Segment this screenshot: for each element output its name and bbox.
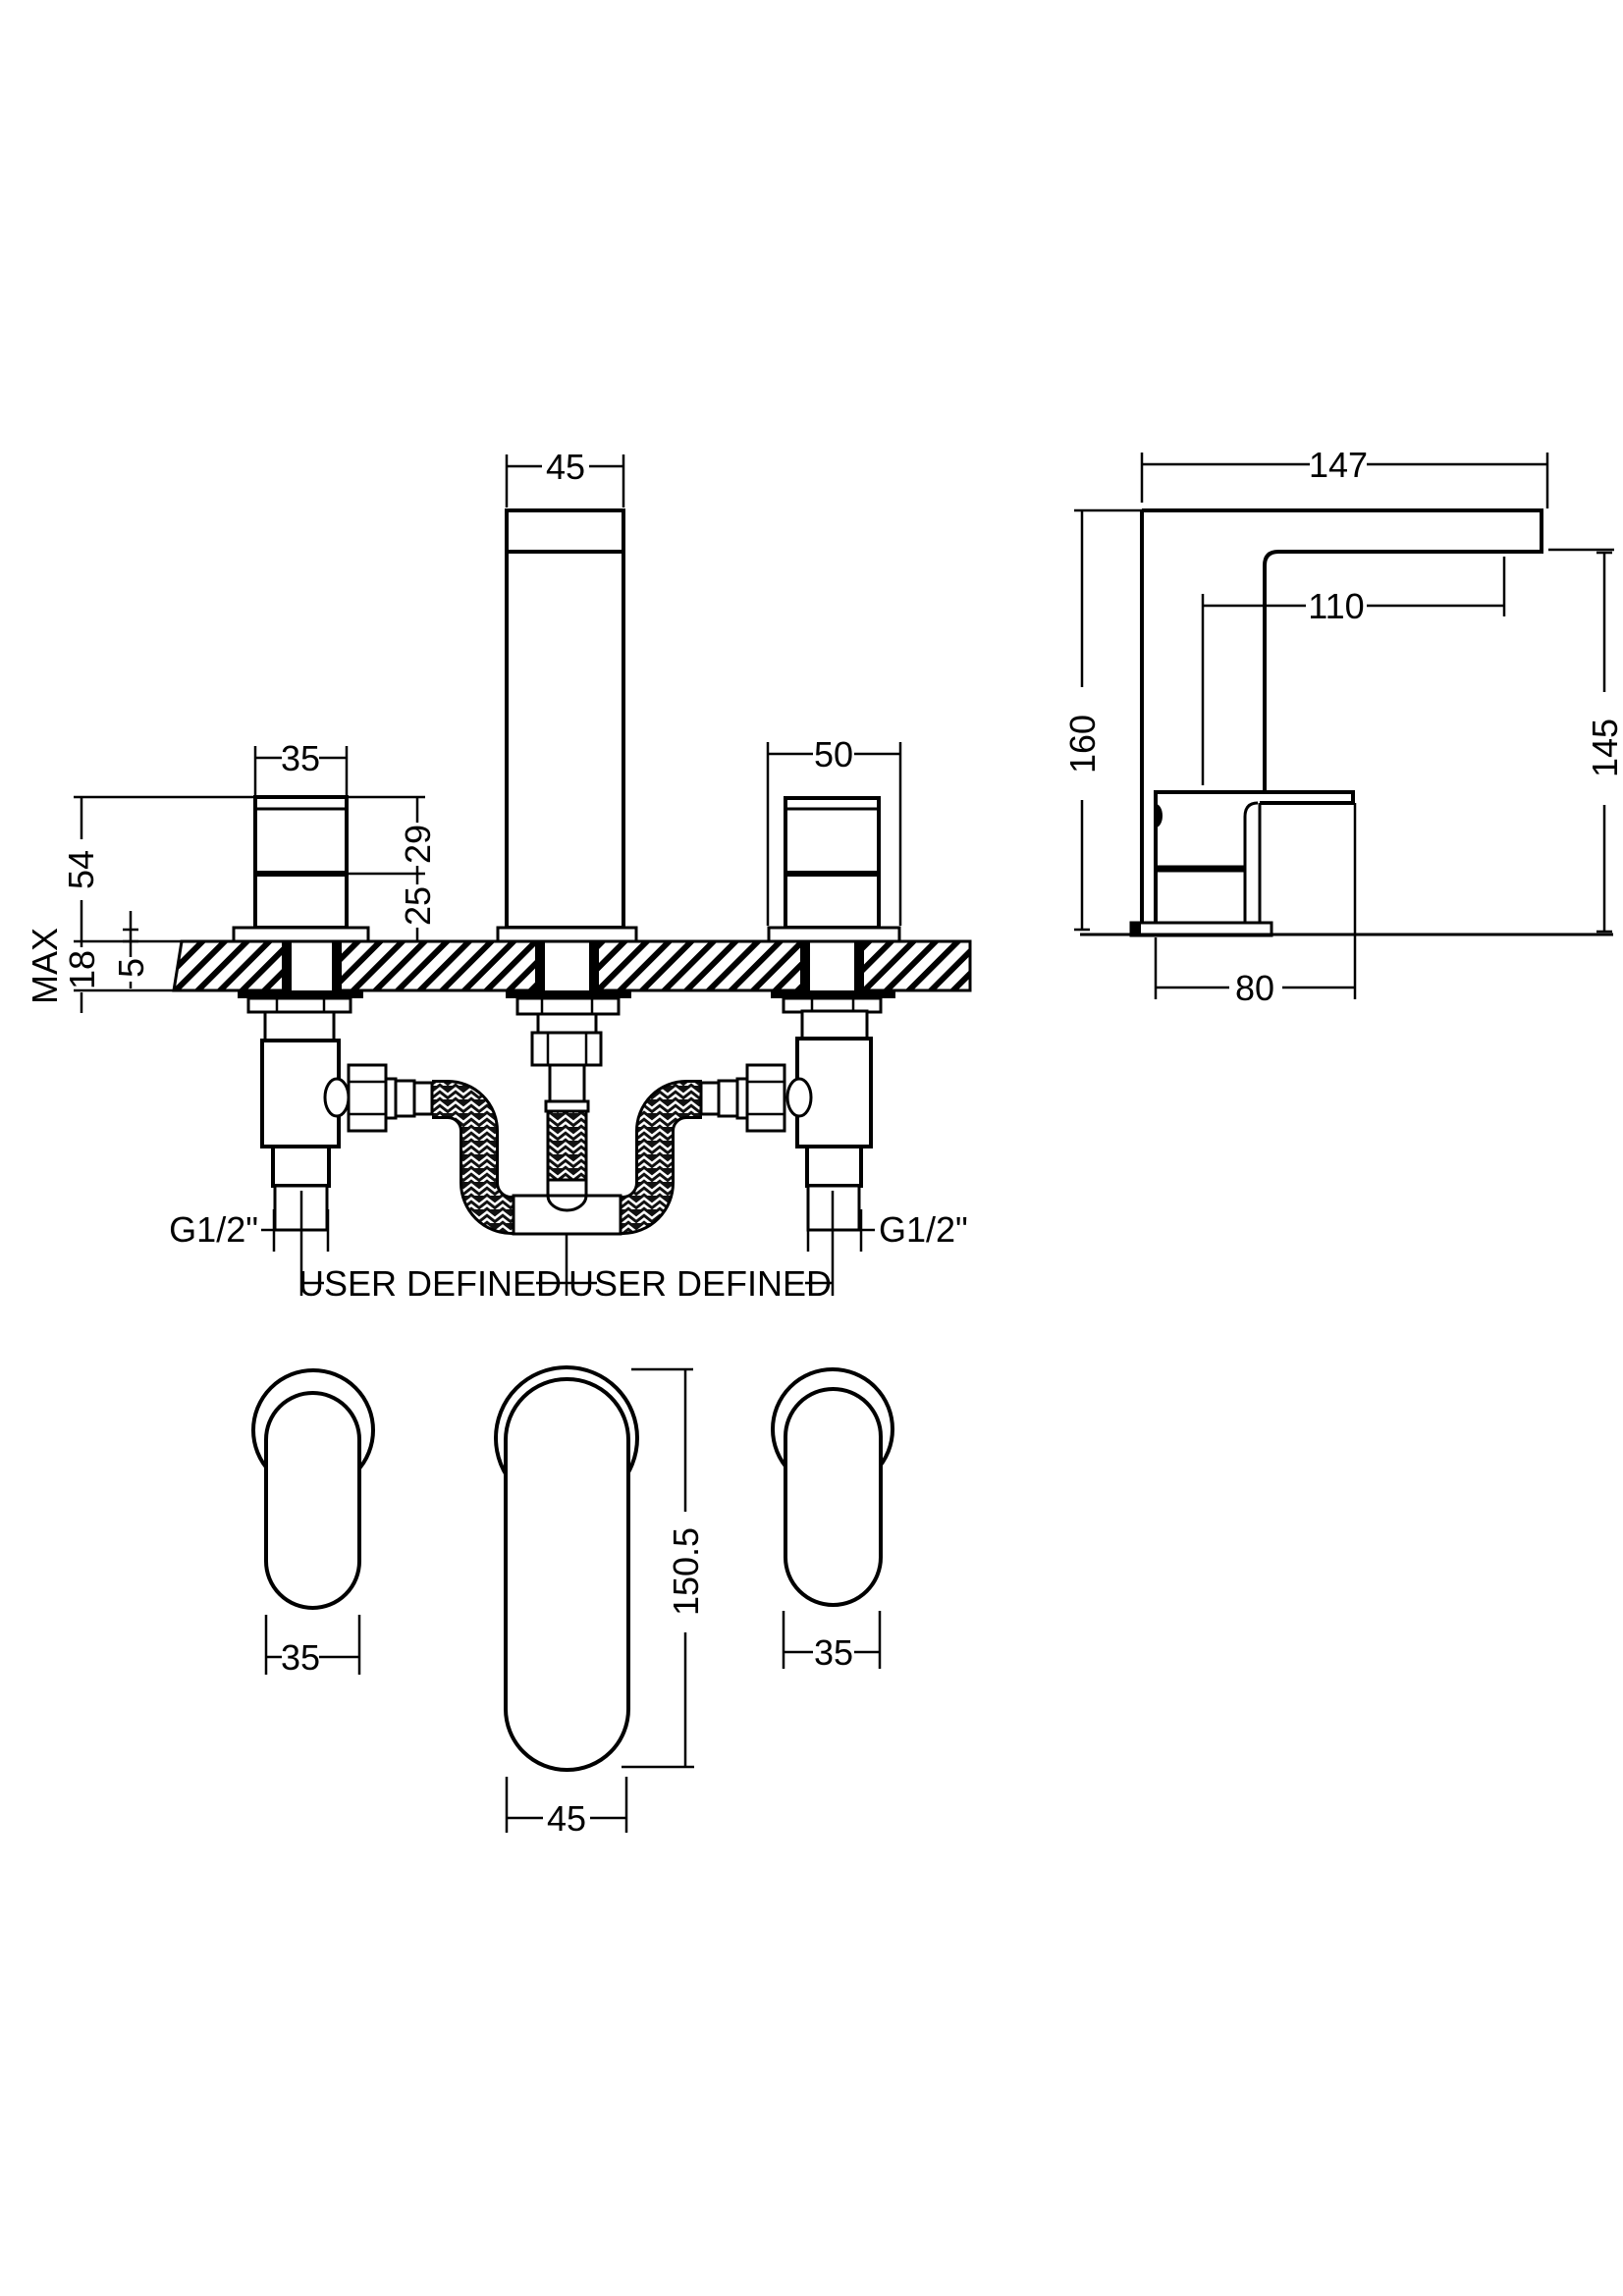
dim-label: 45 — [547, 1798, 586, 1839]
dim-label: 50 — [814, 734, 853, 774]
front-view: 45 35 50 54 29 25 18 MAX — [25, 447, 970, 1304]
dim-label: 35 — [281, 738, 320, 778]
spout-plan: 150.5 45 — [496, 1367, 706, 1839]
thread-text: G1/2" — [879, 1209, 968, 1250]
shank-wall — [535, 940, 545, 991]
dim-handle-upper: 29 — [347, 797, 438, 874]
dim-label: 54 — [61, 850, 101, 889]
shank-wall — [282, 940, 292, 991]
mounting-hardware — [238, 990, 895, 1014]
dim-height-above-deck: 54 — [61, 797, 253, 941]
right-handle-front — [769, 798, 899, 941]
dim-spout-height: 145 — [1548, 550, 1623, 932]
user-defined-left: USER DEFINED — [298, 1263, 562, 1304]
shank-wall — [854, 940, 864, 991]
spout-front — [498, 510, 636, 941]
left-handle-front — [234, 797, 368, 941]
dim-label: 35 — [281, 1637, 320, 1678]
user-defined-right: USER DEFINED — [568, 1263, 832, 1304]
thread-text: G1/2" — [169, 1209, 258, 1250]
dim-label: 160 — [1062, 715, 1103, 774]
left-handle-plan: 35 — [253, 1370, 373, 1678]
dim-label: 18 — [62, 950, 102, 989]
dim-spout-width-top: 45 — [507, 447, 623, 507]
spout-connector-stack — [514, 1014, 621, 1234]
handle-indicator-dot — [1156, 804, 1163, 828]
dim-label: 45 — [546, 447, 585, 487]
dim-label: 145 — [1585, 719, 1623, 777]
dim-label: 25 — [398, 886, 438, 926]
max-label: MAX — [25, 928, 65, 1004]
dim-label: 110 — [1308, 586, 1364, 626]
tee-connector — [514, 1196, 621, 1234]
dim-label: 29 — [398, 825, 438, 864]
hose-nut — [747, 1065, 784, 1131]
deck-max-label: MAX — [25, 928, 65, 1004]
dim-body-depth: 80 — [1156, 803, 1355, 1008]
plan-views: 35 150.5 45 35 — [253, 1367, 893, 1839]
dim-total-reach: 147 — [1142, 445, 1547, 508]
drawing-page: 45 35 50 54 29 25 18 MAX — [0, 0, 1623, 2296]
side-view: 147 110 160 145 80 — [1062, 445, 1623, 1008]
dim-left-handle-width: 35 — [255, 738, 347, 795]
dim-total-height: 160 — [1062, 510, 1142, 930]
flexible-hose-left — [432, 1099, 518, 1215]
technical-drawing: 45 35 50 54 29 25 18 MAX — [0, 0, 1623, 2296]
dim-spout-reach: 110 — [1203, 557, 1504, 785]
dim-label: 35 — [814, 1632, 853, 1673]
flexible-hose-right — [616, 1099, 702, 1215]
dim-base-plate: 5 — [111, 911, 151, 988]
left-valve-body — [262, 1012, 432, 1230]
shank-wall — [800, 940, 810, 991]
right-valve-body — [701, 1011, 871, 1230]
shank-wall — [589, 940, 599, 991]
shank-wall — [332, 940, 342, 991]
dim-spout-length: 150.5 — [622, 1369, 706, 1767]
port-boss — [325, 1079, 349, 1116]
port-boss — [787, 1079, 811, 1116]
right-handle-plan: 35 — [773, 1369, 893, 1673]
hose-nut — [349, 1065, 386, 1131]
dim-label: 147 — [1309, 445, 1368, 485]
handle-profile — [1131, 792, 1353, 935]
dim-label: 80 — [1235, 968, 1274, 1008]
countertop-section — [174, 938, 970, 993]
dim-handle-lower: 25 — [398, 874, 438, 941]
dim-label: 150.5 — [666, 1527, 706, 1616]
dim-spout-width-bottom: 45 — [507, 1777, 626, 1839]
centre-braided-hose — [548, 1111, 586, 1180]
dim-label: 5 — [111, 958, 151, 978]
